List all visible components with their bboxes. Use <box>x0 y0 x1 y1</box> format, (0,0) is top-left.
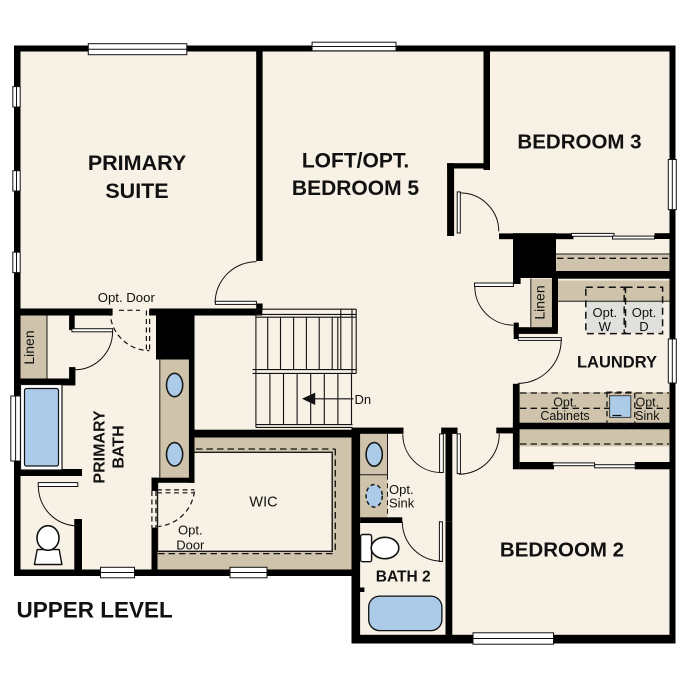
svg-text:Cabinets: Cabinets <box>540 409 589 423</box>
svg-text:UPPER LEVEL: UPPER LEVEL <box>17 598 174 623</box>
svg-text:Sink: Sink <box>389 496 415 511</box>
svg-text:Opt.: Opt. <box>632 305 657 320</box>
svg-text:Opt. Door: Opt. Door <box>98 290 156 305</box>
svg-text:Dn: Dn <box>355 392 372 407</box>
svg-text:SUITE: SUITE <box>105 179 168 203</box>
svg-text:Linen: Linen <box>21 330 37 364</box>
svg-text:WIC: WIC <box>249 494 277 510</box>
svg-text:Opt.: Opt. <box>635 396 659 410</box>
svg-text:BEDROOM 2: BEDROOM 2 <box>500 539 624 562</box>
svg-text:BATH: BATH <box>111 425 128 468</box>
svg-text:Sink: Sink <box>635 409 660 423</box>
svg-text:PRIMARY: PRIMARY <box>92 410 109 484</box>
svg-text:Opt.: Opt. <box>178 523 203 538</box>
svg-text:D: D <box>639 319 648 334</box>
svg-text:LAUNDRY: LAUNDRY <box>577 354 657 372</box>
svg-text:Opt.: Opt. <box>553 396 577 410</box>
svg-text:Opt.: Opt. <box>593 305 618 320</box>
svg-text:Door: Door <box>176 538 205 553</box>
svg-text:W: W <box>599 319 612 334</box>
svg-text:BEDROOM 5: BEDROOM 5 <box>292 177 420 200</box>
svg-text:Linen: Linen <box>532 285 548 319</box>
svg-text:BATH 2: BATH 2 <box>376 569 431 586</box>
svg-text:PRIMARY: PRIMARY <box>88 151 186 175</box>
svg-text:BEDROOM 3: BEDROOM 3 <box>517 131 641 154</box>
svg-text:LOFT/OPT.: LOFT/OPT. <box>302 150 409 173</box>
